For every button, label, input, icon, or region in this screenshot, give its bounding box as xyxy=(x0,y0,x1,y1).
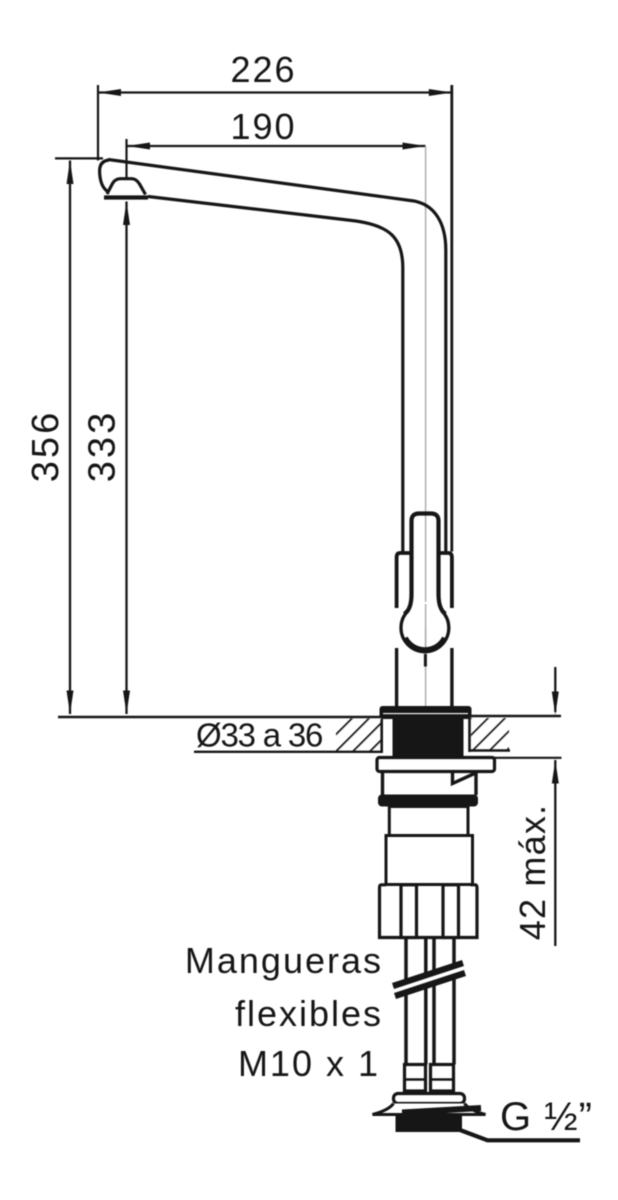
svg-text:G ½”: G ½” xyxy=(500,1095,593,1139)
svg-text:333: 333 xyxy=(82,410,124,482)
svg-text:flexibles: flexibles xyxy=(235,993,383,1034)
svg-text:356: 356 xyxy=(25,410,67,482)
svg-text:M10 x 1: M10 x 1 xyxy=(238,1043,380,1084)
svg-text:226: 226 xyxy=(230,49,296,90)
svg-text:42 máx.: 42 máx. xyxy=(512,804,553,940)
svg-text:Mangueras: Mangueras xyxy=(185,940,383,981)
svg-text:190: 190 xyxy=(230,106,296,147)
svg-text:Ø33 a 36: Ø33 a 36 xyxy=(196,717,322,754)
